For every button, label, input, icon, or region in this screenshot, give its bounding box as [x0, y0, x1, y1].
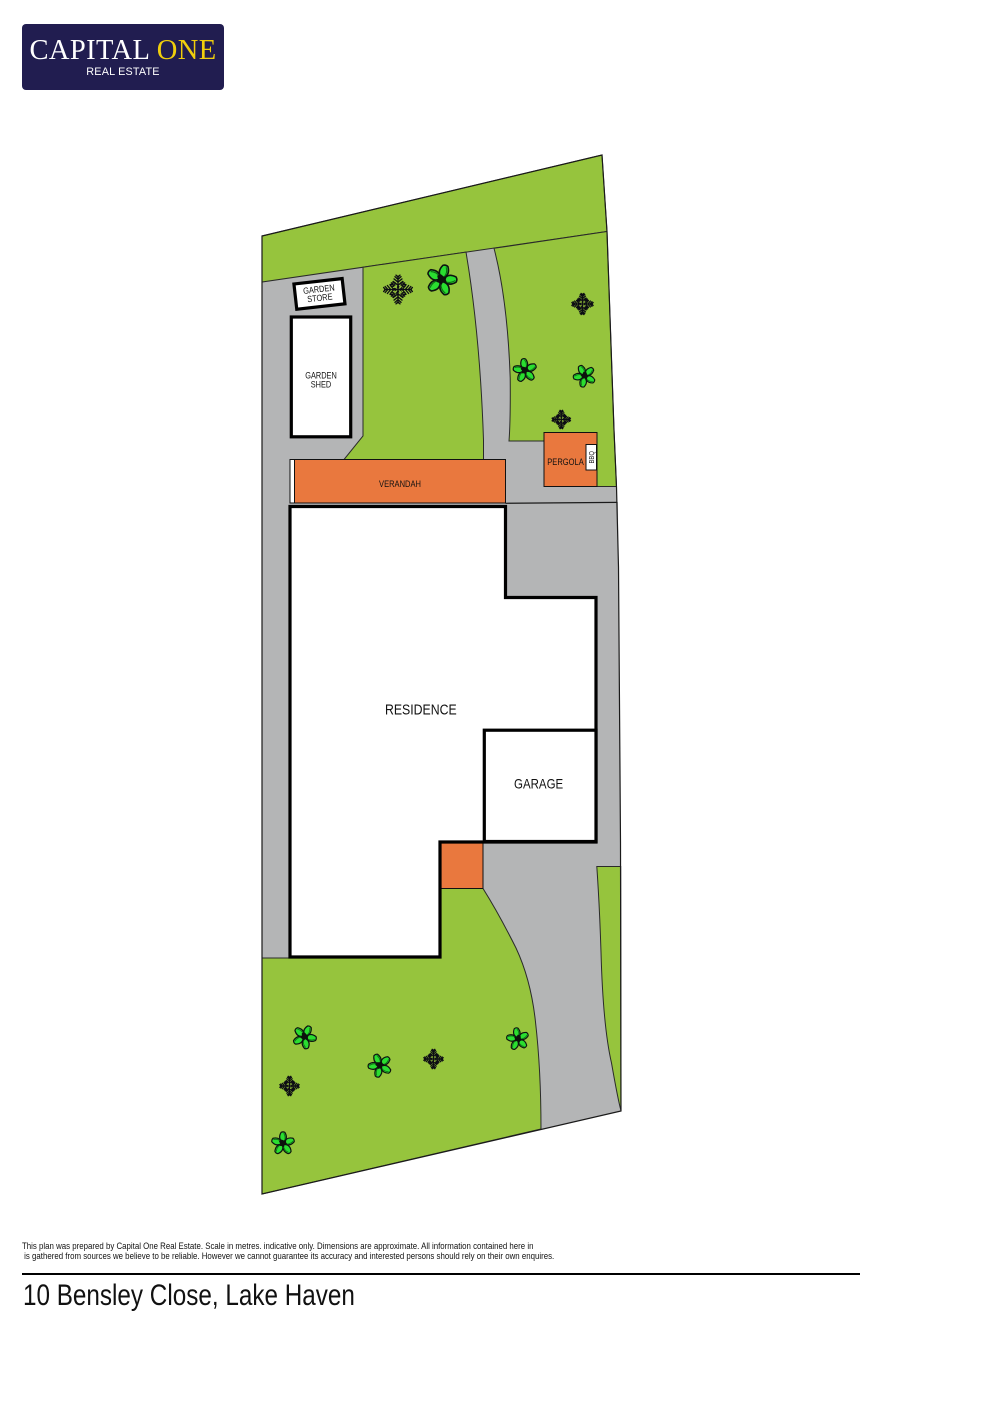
svg-text:VERANDAH: VERANDAH — [379, 478, 421, 489]
svg-text:PERGOLA: PERGOLA — [547, 456, 584, 467]
svg-text:RESIDENCE: RESIDENCE — [385, 701, 457, 717]
svg-text:GARAGE: GARAGE — [514, 775, 563, 791]
svg-text:SHED: SHED — [311, 380, 332, 390]
svg-text:BBQ: BBQ — [589, 451, 597, 463]
